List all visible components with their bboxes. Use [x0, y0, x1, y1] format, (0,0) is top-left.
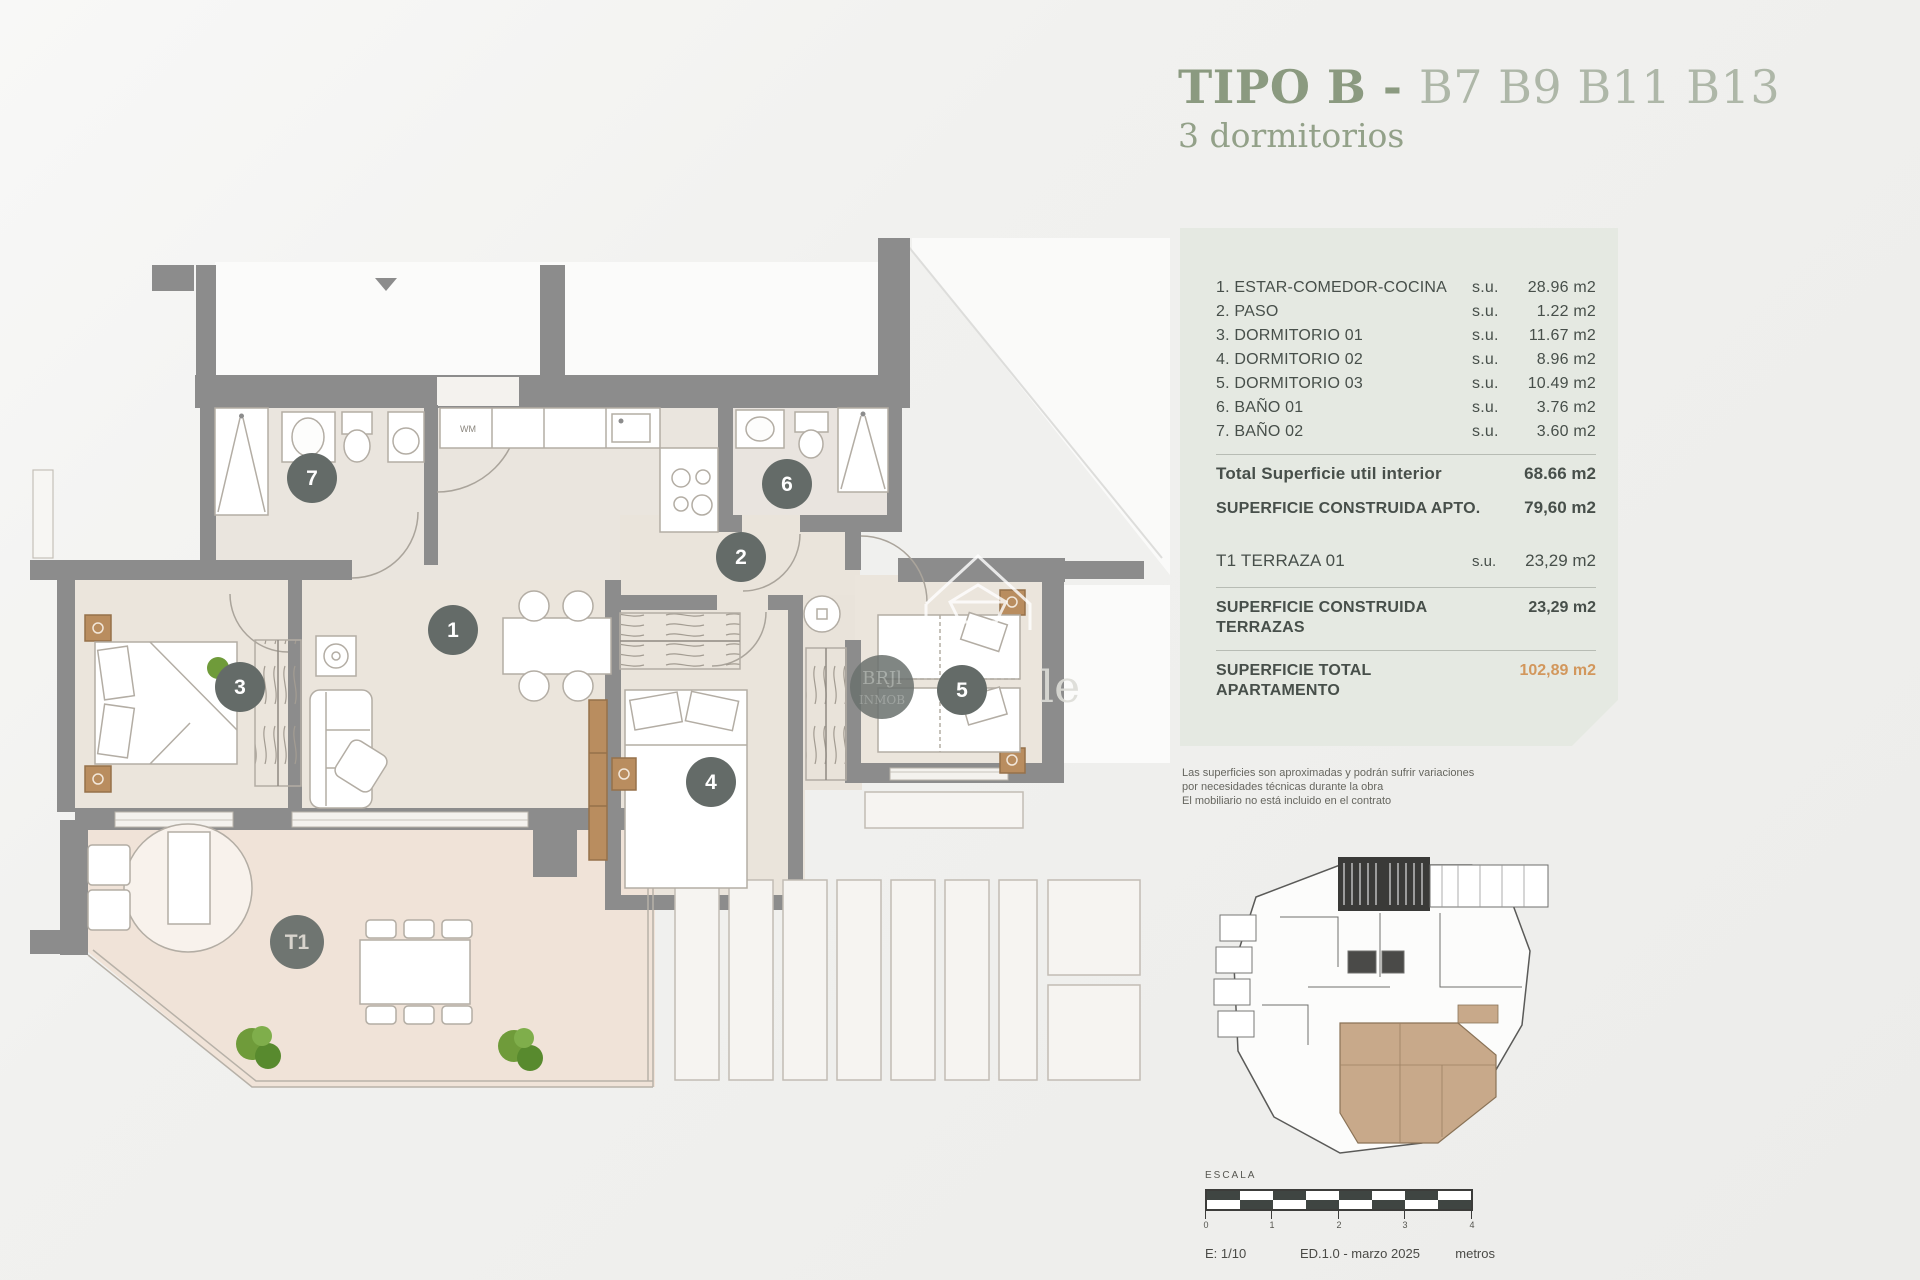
constructed-terrazas-value: 23,29 m2 — [1476, 598, 1596, 638]
title-type: TIPO B — [1178, 60, 1366, 114]
surface-panel: 1. ESTAR-COMEDOR-COCINAs.u.28.96 m2 2. P… — [1180, 228, 1618, 746]
divider — [1216, 650, 1596, 651]
scale-edition: ED.1.0 - marzo 2025 — [1300, 1246, 1455, 1261]
scale-bar: ESCALA 0 1 2 3 4 E: 1/10 ED.1.0 - marzo … — [1205, 1170, 1505, 1261]
disclaimer: Las superficies son aproximadas y podrán… — [1182, 766, 1602, 808]
constructed-terrazas-row: SUPERFICIE CONSTRUIDATERRAZAS 23,29 m2 — [1216, 598, 1596, 638]
room-circle-2: 2 — [716, 532, 766, 582]
title-separator: - — [1366, 60, 1419, 114]
room-label: 3. DORMITORIO 01 — [1216, 324, 1472, 348]
building-key-plan — [1190, 855, 1550, 1165]
room-label: 5. DORMITORIO 03 — [1216, 372, 1472, 396]
room-circle-3: 3 — [215, 662, 265, 712]
room-circle-5: 5 — [937, 665, 987, 715]
room-area: 28.96 m2 — [1506, 276, 1596, 300]
room-row: 2. PASOs.u.1.22 m2 — [1216, 300, 1596, 324]
page-title: TIPO B - B7 B9 B11 B13 — [1178, 62, 1798, 112]
floorplan-sheet: TIPO B - B7 B9 B11 B13 3 dormitorios — [0, 0, 1920, 1280]
scale-ticks — [1205, 1211, 1473, 1219]
room-label: 2. PASO — [1216, 300, 1472, 324]
header: TIPO B - B7 B9 B11 B13 3 dormitorios — [1178, 62, 1798, 154]
room-circle-4: 4 — [686, 757, 736, 807]
svg-text:INMOB: INMOB — [859, 693, 905, 707]
watermark-ghost-text: le — [1040, 662, 1080, 713]
room-area: 11.67 m2 — [1506, 324, 1596, 348]
room-label: 1. ESTAR-COMEDOR-COCINA — [1216, 276, 1472, 300]
constructed-apto-row: SUPERFICIE CONSTRUIDA APTO.79,60 m2 — [1216, 495, 1596, 522]
constructed-apto-value: 79,60 m2 — [1506, 495, 1596, 521]
room-circle-6: 6 — [762, 459, 812, 509]
room-label: 7. BAÑO 02 — [1216, 420, 1472, 444]
room-area: 10.49 m2 — [1506, 372, 1596, 396]
svg-text:1: 1 — [447, 619, 459, 642]
room-circle-7: 7 — [287, 453, 337, 503]
washing-machine-label: WM — [460, 424, 476, 434]
watermark-logo: BRJl INMOB — [850, 655, 914, 719]
svg-text:2: 2 — [735, 546, 747, 569]
svg-text:T1: T1 — [285, 931, 310, 954]
svg-text:7: 7 — [306, 467, 318, 490]
svg-text:3: 3 — [234, 676, 246, 699]
scale-units: metros — [1455, 1246, 1495, 1261]
svg-text:6: 6 — [781, 473, 793, 496]
room-row: 5. DORMITORIO 03s.u.10.49 m2 — [1216, 372, 1596, 396]
room-area: 8.96 m2 — [1506, 348, 1596, 372]
room-label: 6. BAÑO 01 — [1216, 396, 1472, 420]
room-area: 3.60 m2 — [1506, 420, 1596, 444]
room-circle-1: 1 — [428, 605, 478, 655]
grand-total-row: SUPERFICIE TOTALAPARTAMENTO 102,89 m2 — [1216, 661, 1596, 701]
title-unit-codes: B7 B9 B11 B13 — [1419, 60, 1780, 114]
room-area: 3.76 m2 — [1506, 396, 1596, 420]
total-util-value: 68.66 m2 — [1506, 461, 1596, 487]
room-label: 4. DORMITORIO 02 — [1216, 348, 1472, 372]
room-row: 7. BAÑO 02s.u.3.60 m2 — [1216, 420, 1596, 444]
grand-total-value: 102,89 m2 — [1476, 661, 1596, 701]
floor-plan: WM — [30, 230, 1170, 1110]
svg-text:4: 4 — [705, 771, 717, 794]
room-row: 6. BAÑO 01s.u.3.76 m2 — [1216, 396, 1596, 420]
terrace-row: T1 TERRAZA 01s.u.23,29 m2 — [1216, 548, 1596, 575]
scale-bar-graphic — [1205, 1189, 1473, 1211]
svg-text:BRJl: BRJl — [862, 668, 902, 689]
room-area: 1.22 m2 — [1506, 300, 1596, 324]
room-row: 1. ESTAR-COMEDOR-COCINAs.u.28.96 m2 — [1216, 276, 1596, 300]
scale-title: ESCALA — [1205, 1170, 1505, 1181]
room-row: 4. DORMITORIO 02s.u.8.96 m2 — [1216, 348, 1596, 372]
total-util-row: Total Superficie util interior68.66 m2 — [1216, 461, 1596, 487]
divider — [1216, 587, 1596, 588]
svg-text:5: 5 — [956, 679, 968, 702]
terrace-circle: T1 — [270, 915, 324, 969]
room-row: 3. DORMITORIO 01s.u.11.67 m2 — [1216, 324, 1596, 348]
page-subtitle: 3 dormitorios — [1178, 118, 1798, 154]
scale-ratio: E: 1/10 — [1205, 1246, 1300, 1261]
terrace-value: 23,29 m2 — [1506, 548, 1596, 574]
divider — [1216, 454, 1596, 455]
